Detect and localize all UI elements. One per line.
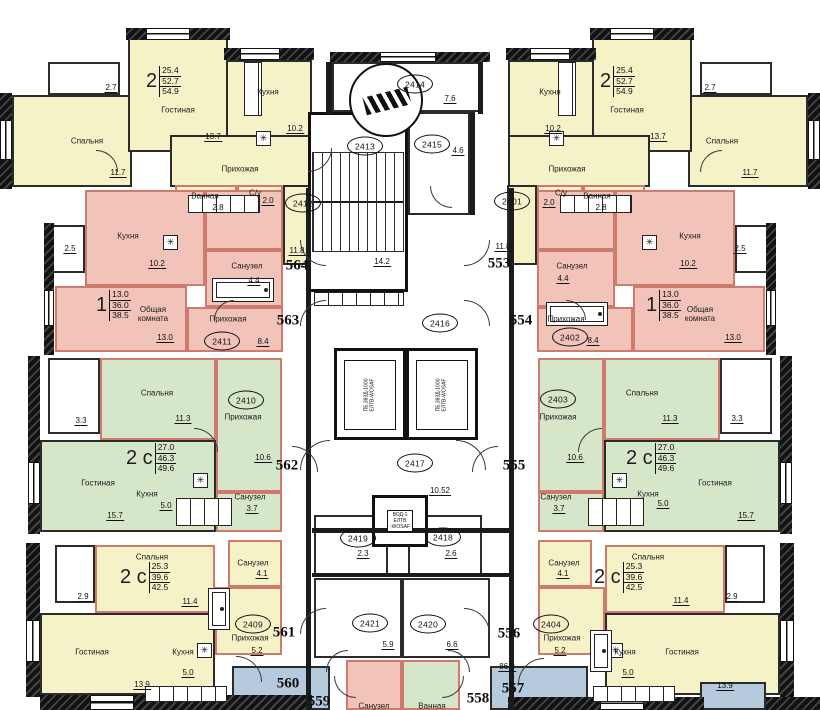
entrance-number-560: 560 (277, 676, 300, 693)
spec-room-count: 2 с (120, 567, 147, 587)
dim-10-6r: 10.6 (566, 453, 584, 463)
room-label-2403-liv: Гостиная (698, 479, 732, 488)
dim-2-9: 2.9 (76, 592, 89, 602)
spec-areas: 13.036.038.5 (659, 290, 681, 321)
dim-4-1r: 4.1 (556, 569, 569, 579)
dim-5-2: 5.2 (250, 646, 263, 656)
spec-area-value: 42.5 (150, 582, 171, 593)
room-label-2401-liv: Гостиная (610, 106, 644, 115)
room-label-2412-wc: С/у (249, 189, 261, 198)
spec-areas: 27.046.349.6 (655, 443, 677, 474)
entrance-number-564: 564 (286, 258, 309, 275)
vent-icon: ✳ (197, 643, 212, 658)
room-label-2401-kit: Кухня (539, 88, 560, 97)
window (90, 695, 134, 710)
entrance-number-556: 556 (498, 626, 521, 643)
dim-11-4r: 11.4 (673, 596, 690, 606)
entrance-number-554: 554 (510, 313, 533, 330)
dim-5-0yr: 5.0 (621, 668, 634, 678)
zone-badge-2404: 2404 (533, 615, 569, 634)
dim-7-6: 7.6 (443, 94, 456, 104)
zone-badge-2421: 2421 (352, 614, 388, 633)
wall-segment (44, 223, 54, 355)
dim-2-3: 2.3 (356, 549, 369, 559)
spec-room-count: 1 (646, 295, 657, 315)
room-label-2411-kit: Кухня (117, 232, 138, 241)
dim-2-0r: 2.0 (542, 198, 555, 208)
spec-room-count: 2 с (626, 448, 653, 468)
spec-area-value: 54.9 (614, 86, 635, 97)
vent-icon: ✳ (642, 235, 657, 250)
window (240, 48, 280, 60)
dim-8-4: 8.4 (256, 337, 269, 347)
room-label-2412-bed: Спальня (71, 137, 103, 146)
window (0, 120, 12, 160)
room-fill-2402-wc (537, 250, 615, 307)
room-label-2404-hall: Прихожая (543, 634, 580, 643)
room-fill-2403-hall (538, 358, 604, 492)
room-label-2402-wc: Санузел (556, 262, 587, 271)
room-label-2409-hall: Прихожая (231, 634, 268, 643)
spec-room-count: 1 (96, 295, 107, 315)
room-label-2410-bed: Спальня (141, 389, 173, 398)
spec-area-value: 52.7 (614, 76, 635, 87)
apartment-spec-2410: 2 с27.046.349.6 (126, 443, 176, 474)
spec-area-value: 36.0 (660, 300, 681, 311)
dim-11-8: 11.8 (289, 246, 306, 256)
wall-segment (478, 62, 483, 114)
floor-plan-canvas: ✳✳✳✳✳✳✳✳225.452.754.9225.452.754.9113.03… (0, 0, 820, 710)
dim-10-2r: 10.2 (544, 124, 562, 134)
dim-5-9: 5.9 (381, 640, 394, 650)
room-label-bath-p: Санузел (358, 702, 389, 710)
spec-room-count: 2 с (126, 448, 153, 468)
fixture (593, 686, 675, 702)
spec-areas: 25.452.754.9 (613, 66, 635, 97)
room-label-2401-wc: С/у (555, 189, 567, 198)
dim-14-2: 14.2 (373, 257, 391, 267)
elevator-label: ПБ.383Д-1000 ЕЛТВ-WOSAF (437, 378, 448, 411)
dim-11-7: 11.7 (110, 168, 127, 178)
dim-13-0r: 13.0 (724, 333, 742, 343)
dim-5-0g: 5.0 (159, 501, 172, 511)
entrance-number-553: 553 (488, 256, 511, 273)
window (380, 52, 436, 62)
dim-13-0: 13.0 (156, 333, 174, 343)
window (530, 48, 570, 60)
elevator-label: ПБ.383Д-1000 ЕЛТВ-WOSAF (365, 378, 376, 411)
zone-badge-2410: 2410 (228, 391, 264, 410)
entrance-number-558: 558 (467, 691, 490, 708)
room-label-2404-kit: Кухня (614, 648, 635, 657)
room-label-2404-wc: Санузел (548, 559, 579, 568)
window (808, 120, 820, 160)
spec-areas: 13.036.038.5 (109, 290, 131, 321)
door-arc (300, 608, 326, 634)
entrance-number-557: 557 (502, 681, 525, 698)
spec-area-value: 52.7 (160, 76, 181, 87)
apartment-spec-2402: 113.036.038.5 (646, 290, 681, 321)
zone-badge-2420: 2420 (410, 615, 446, 634)
room-label-2409-wc: Санузел (237, 559, 268, 568)
apartment-spec-2412: 225.452.754.9 (146, 66, 181, 97)
wall-segment (470, 112, 475, 215)
room-label-2403-kit: Кухня (637, 490, 658, 499)
spec-area-value: 25.4 (614, 66, 635, 76)
zone-badge-2417: 2417 (397, 454, 433, 473)
dim-15-7: 15.7 (106, 511, 124, 521)
door-arc (300, 300, 326, 326)
dim-3-3: 3.3 (74, 416, 87, 426)
apartment-spec-2403: 2 с27.046.349.6 (626, 443, 676, 474)
dim-13-7r: 13.7 (649, 132, 667, 142)
room-label-2412-bath: Ванная (191, 192, 218, 201)
zone-badge-2419: 2419 (340, 529, 376, 548)
dim-2-8r: 2.8 (594, 203, 607, 213)
room-label-2411-hall: Прихожая (209, 315, 246, 324)
bathtub-icon (590, 630, 612, 672)
dim-4-1: 4.1 (255, 569, 268, 579)
room-fill-2403-balc (720, 358, 772, 434)
fixture (314, 292, 404, 306)
room-label-2412-hall: Прихожая (221, 165, 258, 174)
door-arc (236, 656, 262, 682)
dim-4-4: 4.4 (247, 276, 260, 286)
room-label-2412-liv: Гостиная (161, 106, 195, 115)
spec-room-count: 2 (600, 71, 611, 91)
dim-10-2p: 10.2 (148, 259, 166, 269)
zone-badge-2411: 2411 (204, 332, 240, 351)
dim-13-9r: 13.9 (716, 681, 734, 691)
spec-area-value: 49.6 (156, 463, 177, 474)
vent-icon: ✳ (163, 235, 178, 250)
spec-area-value: 38.5 (660, 310, 681, 321)
entrance-number-559: 559 (308, 694, 331, 710)
spec-area-value: 36.0 (110, 300, 131, 311)
zone-badge-2414: 2414 (397, 75, 433, 94)
dim-11-3r: 11.3 (662, 414, 679, 424)
spec-area-value: 42.5 (624, 582, 645, 593)
room-label-2403-hall: Прихожая (539, 413, 576, 422)
room-label-2403-bed: Спальня (626, 389, 658, 398)
room-fill-2411-kit (85, 190, 205, 286)
window (146, 28, 190, 40)
entrance-number-561: 561 (273, 625, 296, 642)
zone-badge-2418: 2418 (425, 528, 461, 547)
dim-11-7r: 11.7 (742, 168, 759, 178)
dim-13-9: 13.9 (133, 680, 151, 690)
fixture (145, 686, 227, 702)
window (26, 620, 40, 662)
dim-2-5: 2.5 (63, 244, 76, 254)
zone-badge-2412: 2412 (285, 194, 321, 213)
spec-area-value: 39.6 (624, 572, 645, 583)
room-fill-2402-kit (615, 190, 735, 286)
dim-2-9r: 2.9 (725, 592, 738, 602)
dim-4-4r: 4.4 (556, 274, 569, 284)
window (28, 462, 40, 504)
spec-area-value: 25.3 (150, 562, 171, 572)
zone-badge-2413: 2413 (347, 137, 383, 156)
room-label-2403-wc: Санузел (540, 493, 571, 502)
room-label-2402-kit: Кухня (679, 232, 700, 241)
dim-2-5r: 2.5 (733, 244, 746, 254)
door-arc (464, 240, 490, 266)
dim-2-7r: 2.7 (703, 83, 716, 93)
dim-10-52: 10.52 (429, 486, 451, 496)
window (780, 462, 792, 504)
door-arc (442, 676, 464, 698)
room-label-2409-kit: Кухня (172, 648, 193, 657)
room-label-2411-wc: Санузел (231, 262, 262, 271)
room-label-2401-bed: Спальня (706, 137, 738, 146)
spec-area-value: 39.6 (150, 572, 171, 583)
fixture (176, 498, 232, 526)
dim-15-7r: 15.7 (737, 511, 755, 521)
dim-4-6: 4.6 (451, 146, 464, 156)
vent-icon: ✳ (612, 473, 627, 488)
room-fill-2403-bed (604, 358, 720, 440)
tech-equipment-label: ВОД-1 ЕЛТВ -WOSAF (387, 510, 413, 532)
apartment-spec-2404: 2 с25.339.642.5 (594, 562, 644, 593)
dim-2-6: 2.6 (444, 549, 457, 559)
spec-room-count: 2 с (594, 567, 621, 587)
room-fill-2412-hall (170, 135, 312, 187)
dim-2-8: 2.8 (211, 203, 224, 213)
zone-badge-2402: 2402 (552, 328, 588, 347)
dim-6-6: 6.6 (445, 640, 458, 650)
apartment-spec-2411: 113.036.038.5 (96, 290, 131, 321)
apartment-spec-2401: 225.452.754.9 (600, 66, 635, 97)
door-arc (464, 300, 490, 326)
spec-area-value: 46.3 (656, 453, 677, 464)
staircase (312, 152, 404, 252)
spec-area-value: 13.0 (660, 290, 681, 300)
zone-badge-2409: 2409 (235, 615, 271, 634)
spec-area-value: 25.3 (624, 562, 645, 572)
window (780, 620, 794, 662)
dim-10-6: 10.6 (254, 453, 272, 463)
zone-badge-2415: 2415 (414, 135, 450, 154)
room-label-2404-liv: Гостиная (665, 648, 699, 657)
door-arc (334, 676, 356, 698)
spec-area-value: 54.9 (160, 86, 181, 97)
room-label-2412-kit: Кухня (257, 88, 278, 97)
spec-room-count: 2 (146, 71, 157, 91)
dim-5-2r: 5.2 (553, 646, 566, 656)
window (766, 290, 776, 326)
room-fill-2401-hall (508, 135, 650, 187)
spec-area-value: 49.6 (656, 463, 677, 474)
zone-badge-2416: 2416 (422, 314, 458, 333)
bathtub-icon (212, 278, 274, 302)
spec-areas: 25.452.754.9 (159, 66, 181, 97)
room-fill-2410-hall (216, 358, 282, 492)
spec-areas: 25.339.642.5 (623, 562, 645, 593)
room-label-2410-kit: Кухня (136, 490, 157, 499)
zone-badge-2403: 2403 (540, 390, 576, 409)
dim-3-7: 3.7 (245, 504, 258, 514)
room-label-2402-hall: Прихожая (547, 315, 584, 324)
dim-3-3r: 3.3 (730, 414, 743, 424)
room-label-2409-liv: Гостиная (75, 648, 109, 657)
wall-segment (766, 697, 820, 710)
room-label-2410-hall: Прихожая (224, 413, 261, 422)
window (610, 28, 654, 40)
dim-11-4: 11.4 (182, 597, 199, 607)
dim-86-9: 86.9 (498, 662, 516, 672)
dim-2-7: 2.7 (104, 83, 117, 93)
spec-areas: 25.339.642.5 (149, 562, 171, 593)
room-label-2410-liv: Гостиная (81, 479, 115, 488)
wall-segment (780, 356, 792, 534)
room-label-2401-hall: Прихожая (548, 165, 585, 174)
entrance-number-555: 555 (503, 458, 526, 475)
bathtub-icon (208, 588, 230, 630)
spec-area-value: 27.0 (156, 443, 177, 453)
apartment-spec-2409: 2 с25.339.642.5 (120, 562, 170, 593)
room-label-2401-bath: Ванная (583, 192, 610, 201)
window (44, 290, 54, 326)
wall-segment (326, 62, 332, 114)
dim-5-0y: 5.0 (181, 668, 194, 678)
room-label-2404-bed: Спальня (632, 553, 664, 562)
wall-segment (28, 356, 40, 534)
room-label-2411-liv: Общая комната (138, 305, 168, 323)
room-label-2409-bed: Спальня (136, 553, 168, 562)
dim-10-2: 10.2 (286, 124, 304, 134)
room-label-bath-g: Ванная (418, 702, 445, 710)
dim-3-7r: 3.7 (552, 504, 565, 514)
spec-area-value: 25.4 (160, 66, 181, 76)
spec-area-value: 38.5 (110, 310, 131, 321)
spec-area-value: 13.0 (110, 290, 131, 300)
spec-areas: 27.046.349.6 (155, 443, 177, 474)
spec-area-value: 46.3 (156, 453, 177, 464)
dim-11-3: 11.3 (175, 414, 192, 424)
room-label-2402-liv: Общая комната (685, 305, 715, 323)
dim-10-2pr: 10.2 (679, 259, 697, 269)
dim-11-8r: 11.8 (495, 242, 512, 252)
entrance-number-563: 563 (277, 313, 300, 330)
zone-badge-2401: 2401 (494, 192, 530, 211)
vent-icon: ✳ (193, 473, 208, 488)
wall-segment (766, 223, 776, 355)
vent-icon: ✳ (256, 131, 271, 146)
dim-8-4r: 8.4 (586, 336, 599, 346)
fixture (588, 498, 644, 526)
dim-13-7: 13.7 (204, 132, 222, 142)
wall-segment (312, 573, 510, 577)
room-label-2410-wc: Санузел (234, 493, 265, 502)
dim-2-0: 2.0 (261, 196, 274, 206)
dim-5-0gr: 5.0 (656, 499, 669, 509)
entrance-number-562: 562 (276, 458, 299, 475)
spec-area-value: 27.0 (656, 443, 677, 453)
